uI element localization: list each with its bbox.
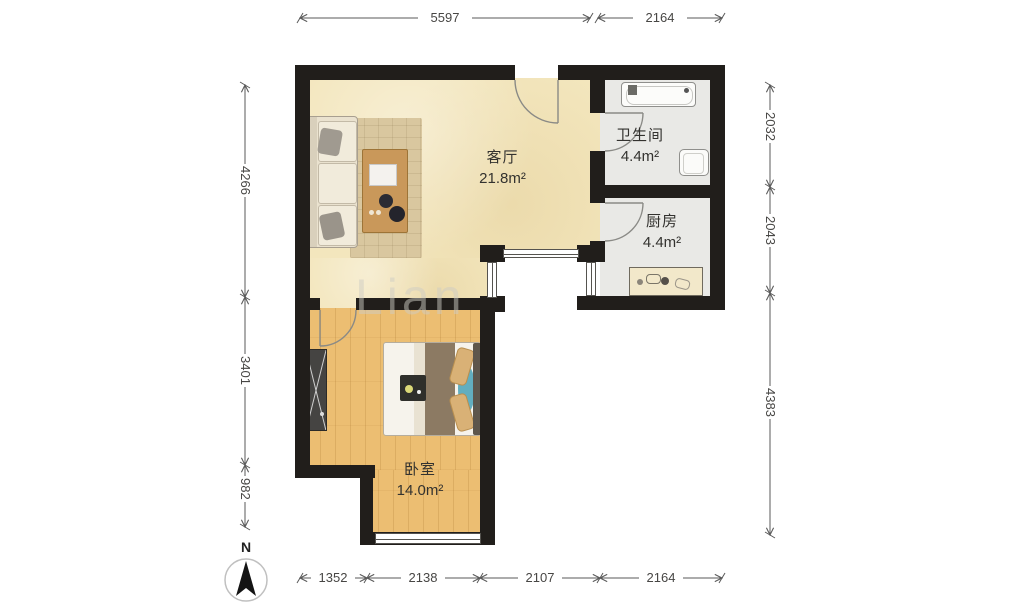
north-arrow-icon <box>236 561 256 596</box>
dim-left-1: 4266 <box>237 164 253 197</box>
stove-icon <box>674 277 691 290</box>
sink-icon <box>637 279 643 285</box>
bay-window-right <box>586 262 596 296</box>
dim-bottom-2: 2138 <box>401 570 445 586</box>
wall-left <box>295 65 310 478</box>
wall-top-left <box>295 65 515 80</box>
dim-left-2: 3401 <box>237 354 253 387</box>
wall-top-right <box>558 65 725 80</box>
bathroom-area: 4.4m² <box>621 148 659 165</box>
burner-icon <box>661 277 669 285</box>
wall-bedroom-right <box>480 300 495 545</box>
bed-runner <box>425 343 455 435</box>
compass-circle <box>225 559 267 601</box>
table-dot <box>376 210 381 215</box>
kitchen-area: 4.4m² <box>643 234 681 251</box>
wall-bay-column-left <box>480 245 505 262</box>
table-dot <box>369 210 374 215</box>
wall-bath-kitchen-divider <box>590 185 725 198</box>
wall-living-bedroom <box>356 298 480 310</box>
wall-right <box>710 65 725 310</box>
kettle <box>379 194 393 208</box>
dim-bottom-4: 2164 <box>639 570 683 586</box>
dim-right-1: 2032 <box>762 110 778 143</box>
bed <box>383 342 481 436</box>
compass <box>225 559 267 601</box>
washbasin-inner <box>683 153 704 174</box>
dim-right-2: 2043 <box>762 214 778 247</box>
bathtub <box>621 82 696 107</box>
bedroom-name: 卧室 <box>404 458 436 479</box>
wall-divider-stub <box>295 298 320 310</box>
coffee-table <box>362 149 408 233</box>
compass-north-label: N <box>238 539 254 555</box>
living-room-name: 客厅 <box>486 146 518 167</box>
bathtub-faucet <box>628 85 637 95</box>
sink-basin-icon <box>646 274 661 284</box>
living-room-label: 客厅 21.8m² <box>450 146 555 187</box>
dim-top-1: 5597 <box>418 10 472 26</box>
sofa <box>304 116 358 248</box>
wall-block-left-lower <box>590 241 605 249</box>
bathroom-name: 卫生间 <box>616 124 664 145</box>
bed-tray-dot <box>405 385 413 393</box>
tray <box>369 164 397 186</box>
bed-tray-dot <box>417 390 421 394</box>
wall-step <box>295 465 375 478</box>
living-room-area: 21.8m² <box>479 170 526 187</box>
kettle <box>389 206 405 222</box>
dim-bottom-1: 1352 <box>311 570 355 586</box>
bedroom-area: 14.0m² <box>397 482 444 499</box>
bathtub-drain <box>684 88 689 93</box>
wall-kitchen-bottom <box>577 296 725 310</box>
bay-window-left <box>487 262 497 298</box>
dim-bottom-3: 2107 <box>518 570 562 586</box>
floor-plan: 客厅 21.8m² 卫生间 4.4m² 厨房 4.4m² 卧室 14.0m² 5… <box>0 0 1031 614</box>
washbasin <box>679 149 709 176</box>
kitchen-name: 厨房 <box>646 210 678 231</box>
bed-tray <box>400 375 426 401</box>
sofa-pillow <box>317 127 343 156</box>
dim-right-3: 4383 <box>762 386 778 419</box>
bedroom-label: 卧室 14.0m² <box>370 458 470 499</box>
sofa-cushion <box>318 163 357 204</box>
kitchen-counter <box>629 267 703 296</box>
kitchen-label: 厨房 4.4m² <box>622 210 702 251</box>
dim-top-2: 2164 <box>633 10 687 26</box>
wardrobe-knob <box>320 412 324 416</box>
bathroom-label: 卫生间 4.4m² <box>600 124 680 165</box>
wall-block-left-upper <box>590 65 605 113</box>
bay-window-top <box>503 249 579 258</box>
bedroom-window <box>375 533 481 544</box>
dim-left-3: 982 <box>237 476 253 502</box>
wall-bay-column-bottom <box>480 296 505 312</box>
